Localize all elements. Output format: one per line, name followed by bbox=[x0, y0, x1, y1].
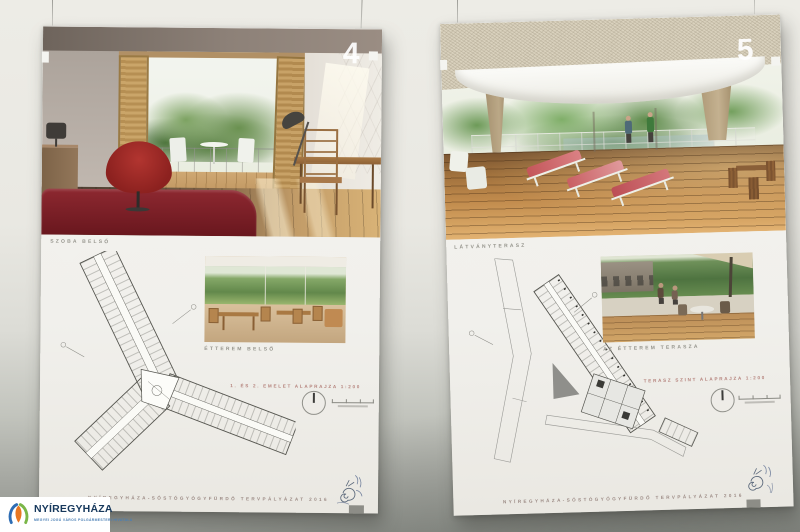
plan-dark-triangle bbox=[553, 362, 580, 399]
restaurant-interior-photo bbox=[204, 256, 346, 343]
velcro-tab bbox=[746, 499, 760, 507]
tree-view bbox=[205, 266, 346, 305]
balcony-table-leg bbox=[213, 146, 215, 164]
scale-bar bbox=[739, 395, 781, 402]
balcony-chair bbox=[237, 138, 254, 163]
logo-text: NYÍREGYHÁZA bbox=[34, 504, 133, 516]
mounting-tab bbox=[440, 60, 447, 70]
dining-chair bbox=[209, 308, 219, 323]
wooden-chair-back bbox=[304, 129, 338, 181]
dining-chair bbox=[293, 309, 303, 324]
balcony-chair bbox=[169, 137, 186, 162]
plan-wing-upper bbox=[79, 251, 177, 393]
photo-caption: LÁTVÁNYTERASZ bbox=[454, 243, 526, 251]
mounting-tab bbox=[42, 52, 49, 63]
photo-caption: SZOBA BELSŐ bbox=[50, 239, 110, 246]
plan-room-cluster bbox=[581, 374, 645, 429]
mounting-tab bbox=[771, 57, 780, 66]
wooden-chair-leg bbox=[303, 183, 305, 213]
terrace-render bbox=[440, 15, 786, 240]
presentation-board-5: 5 LÁTVÁNYTERASZ bbox=[440, 14, 794, 516]
table-leg bbox=[222, 316, 224, 330]
table-lamp-stem bbox=[55, 139, 57, 147]
hanging-wire bbox=[52, 0, 53, 28]
room-interior-render bbox=[41, 27, 382, 238]
white-chair bbox=[465, 166, 487, 190]
presentation-board-4: 4 SZOBA BELSŐ bbox=[39, 26, 382, 514]
tulip-icon bbox=[5, 501, 32, 528]
table-leg bbox=[252, 316, 254, 330]
swan-chair-base bbox=[126, 207, 150, 211]
logo-tagline: MEGYEI JOGÚ VÁROS POLGÁRMESTERI HIVATALA bbox=[34, 518, 133, 522]
table-base bbox=[701, 312, 703, 320]
velcro-tab bbox=[349, 505, 364, 513]
wood-chair bbox=[728, 168, 738, 188]
person-blue-shirt bbox=[625, 116, 633, 143]
balcony-table bbox=[200, 142, 228, 147]
plan-end-block bbox=[659, 418, 698, 447]
plan-outline-band-left bbox=[489, 258, 535, 463]
desk-leg bbox=[300, 164, 302, 204]
person-silhouette bbox=[657, 283, 665, 303]
terrace-chair bbox=[678, 304, 687, 315]
sunlight-on-floor bbox=[255, 178, 376, 237]
facade-windows bbox=[601, 275, 653, 286]
restaurant-terrace-photo bbox=[601, 252, 755, 342]
board-number: 4 bbox=[343, 39, 360, 69]
photo-caption: ÉTTEREM BELSŐ bbox=[204, 346, 275, 353]
dining-chair bbox=[325, 309, 343, 327]
wood-chair bbox=[766, 161, 776, 181]
mounting-tab bbox=[369, 51, 378, 60]
north-arrow bbox=[302, 391, 326, 415]
person-green-shirt bbox=[647, 112, 655, 142]
pencil-doodle bbox=[333, 469, 365, 509]
desk-leg bbox=[372, 164, 374, 208]
red-bed bbox=[41, 189, 256, 237]
city-logo: NYÍREGYHÁZA MEGYEI JOGÚ VÁROS POLGÁRMEST… bbox=[0, 497, 110, 532]
deck-strip bbox=[602, 312, 755, 342]
table-lamp bbox=[46, 123, 66, 139]
scale-bar bbox=[332, 399, 374, 405]
person-silhouette bbox=[671, 285, 678, 303]
dining-chair bbox=[261, 306, 271, 321]
wood-table bbox=[736, 165, 770, 171]
dining-chair bbox=[313, 306, 323, 321]
wooden-chair-leg bbox=[335, 183, 337, 215]
north-arrow bbox=[710, 388, 735, 413]
board-number: 5 bbox=[736, 35, 754, 65]
wood-chair bbox=[748, 177, 759, 199]
terrace-chair bbox=[720, 301, 730, 313]
